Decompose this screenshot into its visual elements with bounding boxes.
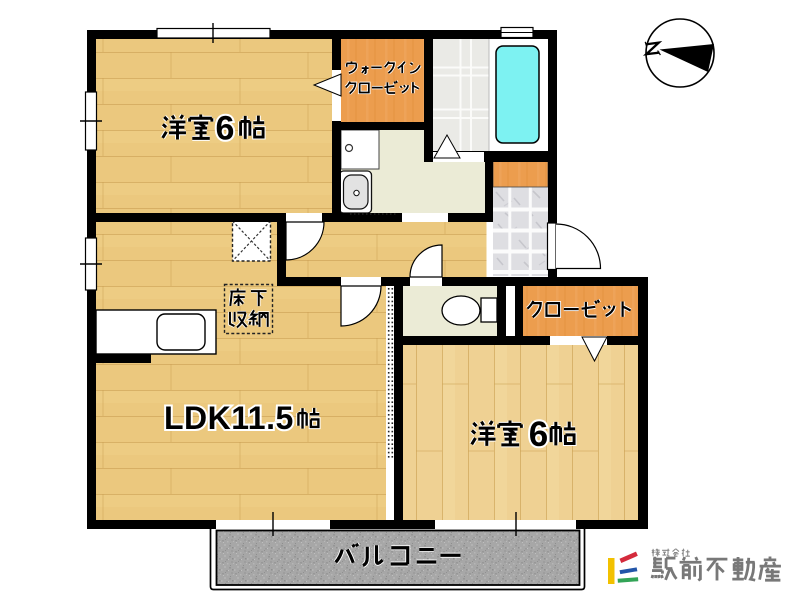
svg-text:6: 6 xyxy=(216,110,235,148)
svg-text:6: 6 xyxy=(529,415,548,454)
svg-text:LDK11.5: LDK11.5 xyxy=(164,400,294,436)
